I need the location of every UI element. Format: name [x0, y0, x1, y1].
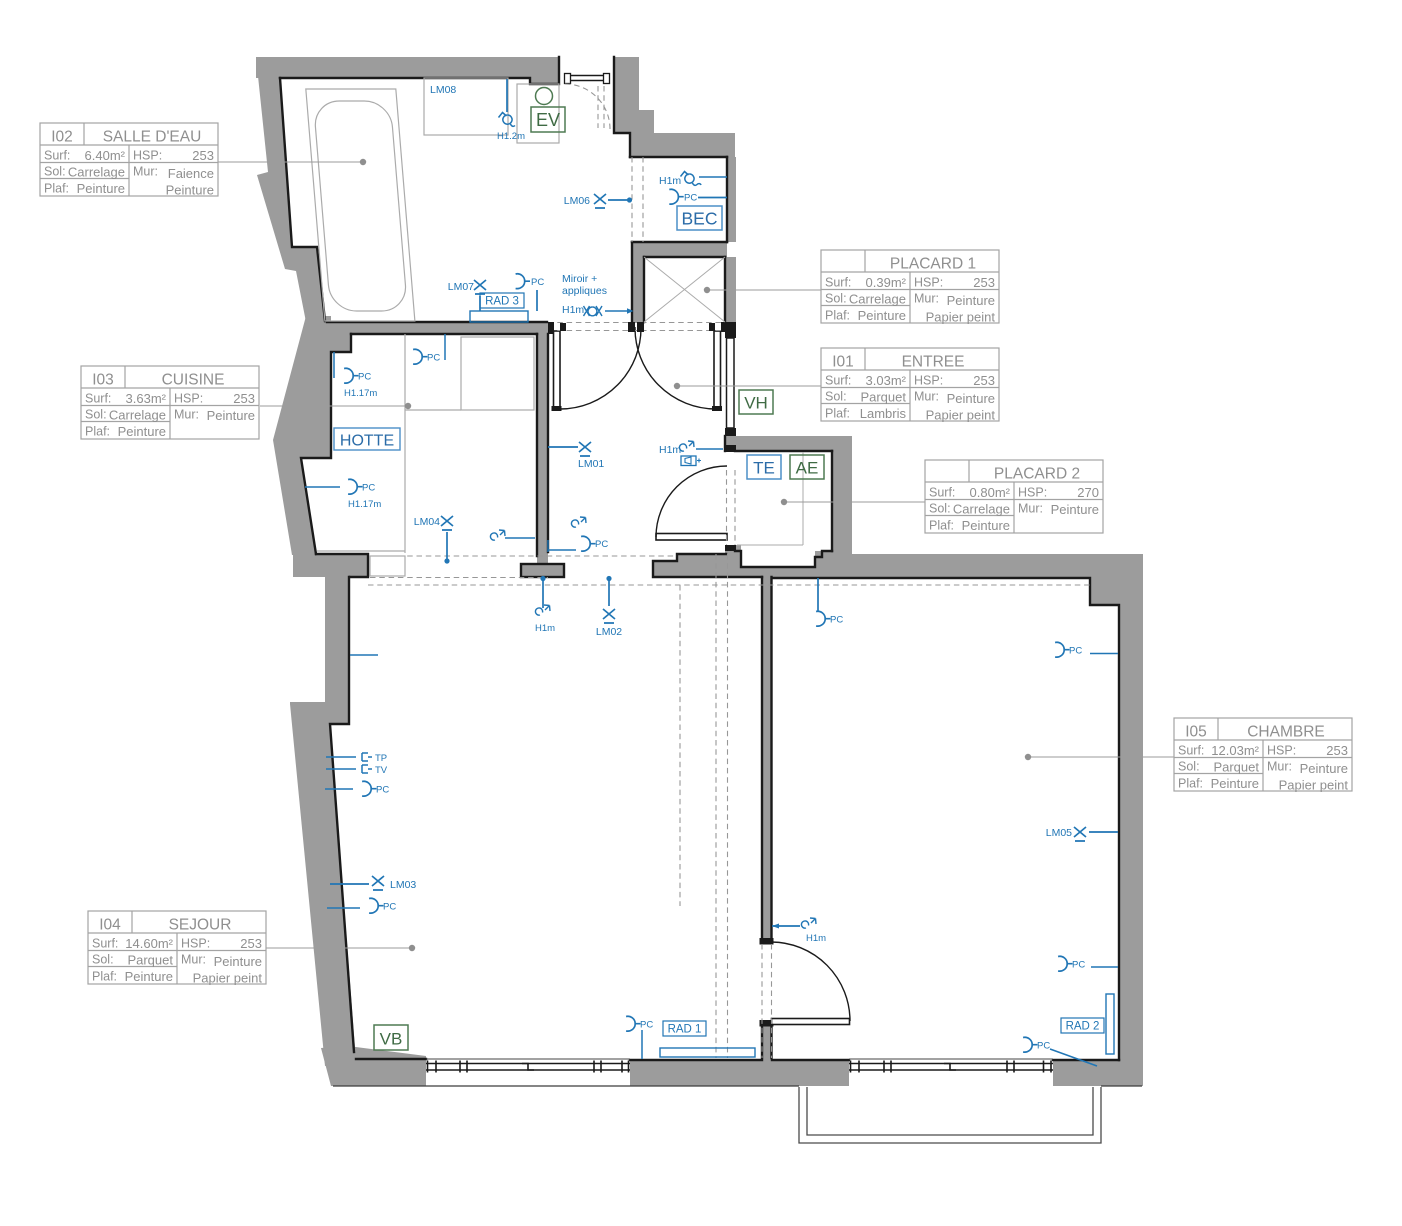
svg-text:Plaf:: Plaf:: [825, 309, 850, 323]
svg-text:EV: EV: [536, 110, 560, 130]
svg-text:LM08: LM08: [430, 84, 456, 96]
svg-text:Sol:: Sol:: [825, 390, 847, 404]
svg-text:Miroir +: Miroir +: [562, 273, 597, 285]
svg-text:HSP:: HSP:: [174, 392, 203, 406]
svg-text:HSP:: HSP:: [133, 149, 162, 163]
svg-text:TP: TP: [375, 753, 387, 764]
svg-text:Surf:: Surf:: [929, 486, 955, 500]
svg-text:Peinture: Peinture: [77, 181, 125, 196]
svg-text:PC: PC: [376, 785, 389, 796]
svg-text:I03: I03: [92, 372, 114, 389]
svg-text:270: 270: [1077, 485, 1099, 500]
svg-text:253: 253: [973, 373, 995, 388]
svg-text:Carrelage: Carrelage: [849, 292, 906, 307]
svg-text:Plaf:: Plaf:: [85, 425, 110, 439]
svg-text:Peinture: Peinture: [207, 408, 255, 423]
svg-text:ENTREE: ENTREE: [902, 354, 965, 371]
svg-text:H1m: H1m: [806, 933, 826, 944]
svg-text:PC: PC: [1037, 1041, 1050, 1052]
svg-text:HSP:: HSP:: [1018, 486, 1047, 500]
svg-text:Surf:: Surf:: [92, 937, 118, 951]
svg-text:Surf:: Surf:: [44, 149, 70, 163]
svg-text:Sol:: Sol:: [1178, 760, 1200, 774]
svg-text:Sol:: Sol:: [44, 165, 66, 179]
svg-text:Plaf:: Plaf:: [1178, 777, 1203, 791]
svg-text:H1.17m: H1.17m: [348, 499, 381, 510]
svg-text:H1.17m: H1.17m: [344, 388, 377, 399]
svg-text:Papier peint: Papier peint: [926, 310, 996, 325]
svg-text:Lambris: Lambris: [860, 406, 907, 421]
svg-text:H1m: H1m: [562, 304, 584, 316]
svg-text:LM07: LM07: [448, 281, 474, 293]
svg-text:Sol:: Sol:: [85, 408, 107, 422]
svg-text:VB: VB: [380, 1030, 403, 1049]
svg-text:LM02: LM02: [596, 626, 622, 638]
svg-text:LM05: LM05: [1046, 827, 1072, 839]
svg-text:PC: PC: [362, 483, 375, 494]
svg-text:PLACARD 1: PLACARD 1: [890, 256, 976, 273]
svg-text:Peinture: Peinture: [125, 969, 173, 984]
svg-text:VH: VH: [744, 394, 768, 413]
svg-text:Mur:: Mur:: [174, 408, 199, 422]
svg-text:Mur:: Mur:: [181, 953, 206, 967]
svg-text:Peinture: Peinture: [962, 518, 1010, 533]
svg-text:253: 253: [233, 391, 255, 406]
svg-text:Papier peint: Papier peint: [926, 408, 996, 423]
svg-text:Plaf:: Plaf:: [825, 407, 850, 421]
svg-text:PC: PC: [531, 277, 544, 288]
svg-text:Mur:: Mur:: [1267, 760, 1292, 774]
svg-text:Surf:: Surf:: [825, 374, 851, 388]
svg-text:PC: PC: [684, 193, 697, 204]
svg-text:Plaf:: Plaf:: [929, 519, 954, 533]
svg-text:12.03m²: 12.03m²: [1211, 743, 1259, 758]
svg-text:SALLE D'EAU: SALLE D'EAU: [103, 129, 202, 146]
svg-text:253: 253: [192, 148, 214, 163]
svg-text:Surf:: Surf:: [85, 392, 111, 406]
svg-text:PC: PC: [640, 1020, 653, 1031]
svg-text:Parquet: Parquet: [127, 953, 173, 968]
svg-text:BEC: BEC: [682, 209, 718, 229]
svg-text:Peinture: Peinture: [166, 183, 214, 198]
svg-text:HSP:: HSP:: [914, 276, 943, 290]
svg-text:RAD 3: RAD 3: [485, 296, 519, 308]
svg-text:Mur:: Mur:: [914, 292, 939, 306]
svg-text:appliques: appliques: [562, 285, 607, 297]
svg-text:I02: I02: [51, 129, 73, 146]
svg-text:Peinture: Peinture: [947, 293, 995, 308]
svg-text:PC: PC: [1069, 646, 1082, 657]
svg-text:253: 253: [973, 275, 995, 290]
svg-text:H1m: H1m: [659, 444, 681, 456]
svg-text:Peinture: Peinture: [118, 424, 166, 439]
svg-text:H1.2m: H1.2m: [497, 131, 525, 142]
svg-text:253: 253: [240, 936, 262, 951]
svg-text:RAD 1: RAD 1: [668, 1024, 702, 1036]
svg-text:Surf:: Surf:: [1178, 744, 1204, 758]
svg-text:PC: PC: [383, 902, 396, 913]
svg-text:Peinture: Peinture: [1051, 502, 1099, 517]
svg-text:HSP:: HSP:: [181, 937, 210, 951]
svg-text:PC: PC: [358, 372, 371, 383]
svg-text:H1m: H1m: [535, 623, 555, 634]
svg-text:I01: I01: [832, 354, 854, 371]
svg-text:CUISINE: CUISINE: [162, 372, 225, 389]
svg-text:PC: PC: [595, 539, 608, 550]
svg-text:LM03: LM03: [390, 879, 416, 891]
svg-text:3.63m²: 3.63m²: [126, 391, 167, 406]
svg-text:Mur:: Mur:: [133, 165, 158, 179]
svg-text:PC: PC: [427, 353, 440, 364]
svg-text:Faience: Faience: [168, 166, 214, 181]
svg-text:Surf:: Surf:: [825, 276, 851, 290]
svg-text:3.03m²: 3.03m²: [866, 373, 907, 388]
svg-text:Carrelage: Carrelage: [953, 502, 1010, 517]
svg-text:PC: PC: [1072, 960, 1085, 971]
svg-text:I04: I04: [99, 917, 121, 934]
svg-text:H1m: H1m: [659, 175, 681, 187]
svg-text:Parquet: Parquet: [1213, 760, 1259, 775]
svg-text:Parquet: Parquet: [860, 390, 906, 405]
svg-text:Mur:: Mur:: [914, 390, 939, 404]
svg-text:I05: I05: [1185, 724, 1207, 741]
svg-text:HOTTE: HOTTE: [340, 433, 394, 450]
svg-text:HSP:: HSP:: [1267, 744, 1296, 758]
svg-text:Carrelage: Carrelage: [68, 165, 125, 180]
svg-text:Sol:: Sol:: [825, 292, 847, 306]
svg-text:TV: TV: [375, 765, 388, 776]
svg-text:Papier peint: Papier peint: [193, 971, 263, 986]
svg-text:Peinture: Peinture: [1211, 776, 1259, 791]
svg-text:0.80m²: 0.80m²: [970, 485, 1011, 500]
svg-text:Peinture: Peinture: [1300, 761, 1348, 776]
svg-text:Peinture: Peinture: [858, 308, 906, 323]
svg-text:Sol:: Sol:: [929, 502, 951, 516]
svg-text:LM01: LM01: [578, 458, 604, 470]
svg-text:LM06: LM06: [564, 195, 590, 207]
svg-text:HSP:: HSP:: [914, 374, 943, 388]
svg-text:AE: AE: [796, 459, 819, 478]
svg-text:Peinture: Peinture: [214, 954, 262, 969]
svg-text:Plaf:: Plaf:: [92, 970, 117, 984]
svg-text:LM04: LM04: [414, 516, 440, 528]
svg-text:TE: TE: [753, 459, 775, 478]
svg-text:Carrelage: Carrelage: [109, 408, 166, 423]
svg-text:RAD 2: RAD 2: [1066, 1021, 1100, 1033]
svg-text:6.40m²: 6.40m²: [85, 148, 126, 163]
svg-text:253: 253: [1326, 743, 1348, 758]
svg-text:PC: PC: [830, 615, 843, 626]
svg-text:CHAMBRE: CHAMBRE: [1247, 724, 1325, 741]
svg-text:Peinture: Peinture: [947, 391, 995, 406]
svg-text:PLACARD 2: PLACARD 2: [994, 466, 1080, 483]
svg-text:Mur:: Mur:: [1018, 502, 1043, 516]
svg-text:Papier peint: Papier peint: [1279, 778, 1349, 793]
svg-text:Sol:: Sol:: [92, 953, 114, 967]
svg-text:Plaf:: Plaf:: [44, 182, 69, 196]
svg-text:SEJOUR: SEJOUR: [169, 917, 232, 934]
svg-text:0.39m²: 0.39m²: [866, 275, 907, 290]
svg-text:14.60m²: 14.60m²: [125, 936, 173, 951]
